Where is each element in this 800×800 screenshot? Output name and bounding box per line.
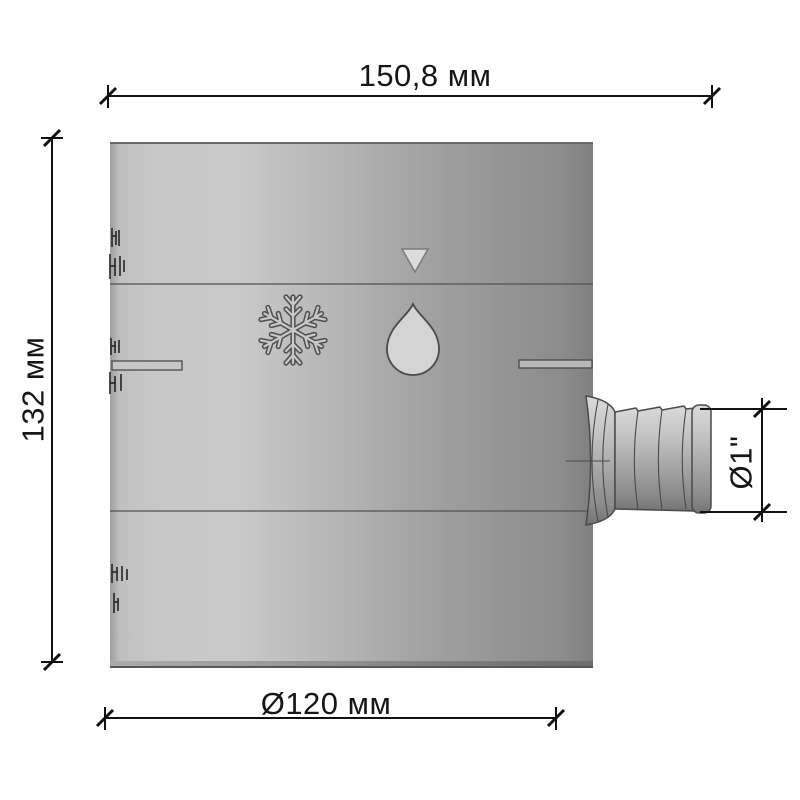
dimension-top-label: 150,8 мм [325,60,525,91]
embossed-text-mark [112,228,119,247]
outlet-barb-body [615,406,695,511]
embossed-text-mark [110,372,121,394]
dimension-bottom-label: Ø120 мм [226,688,426,719]
hose-barb-outlet [566,396,711,525]
dimension-left-label: 132 мм [18,330,49,450]
embossed-text-mark [110,254,124,279]
water-drop-icon [387,304,439,375]
down-triangle-marker-icon [402,249,428,272]
outlet-end-cap [692,405,711,513]
left-vent-slot [112,361,182,370]
snowflake-icon [261,297,325,363]
embossed-mold-text-marks [110,228,127,613]
embossed-text-mark [114,593,119,613]
embossed-text-mark [111,338,119,355]
right-vent-slot [519,360,592,368]
technical-drawing-canvas: 150,8 мм 132 мм Ø120 мм Ø1" [0,0,800,800]
dimension-right-label: Ø1" [726,403,757,523]
embossed-text-mark [112,564,127,583]
drawing-overlay [0,0,800,800]
